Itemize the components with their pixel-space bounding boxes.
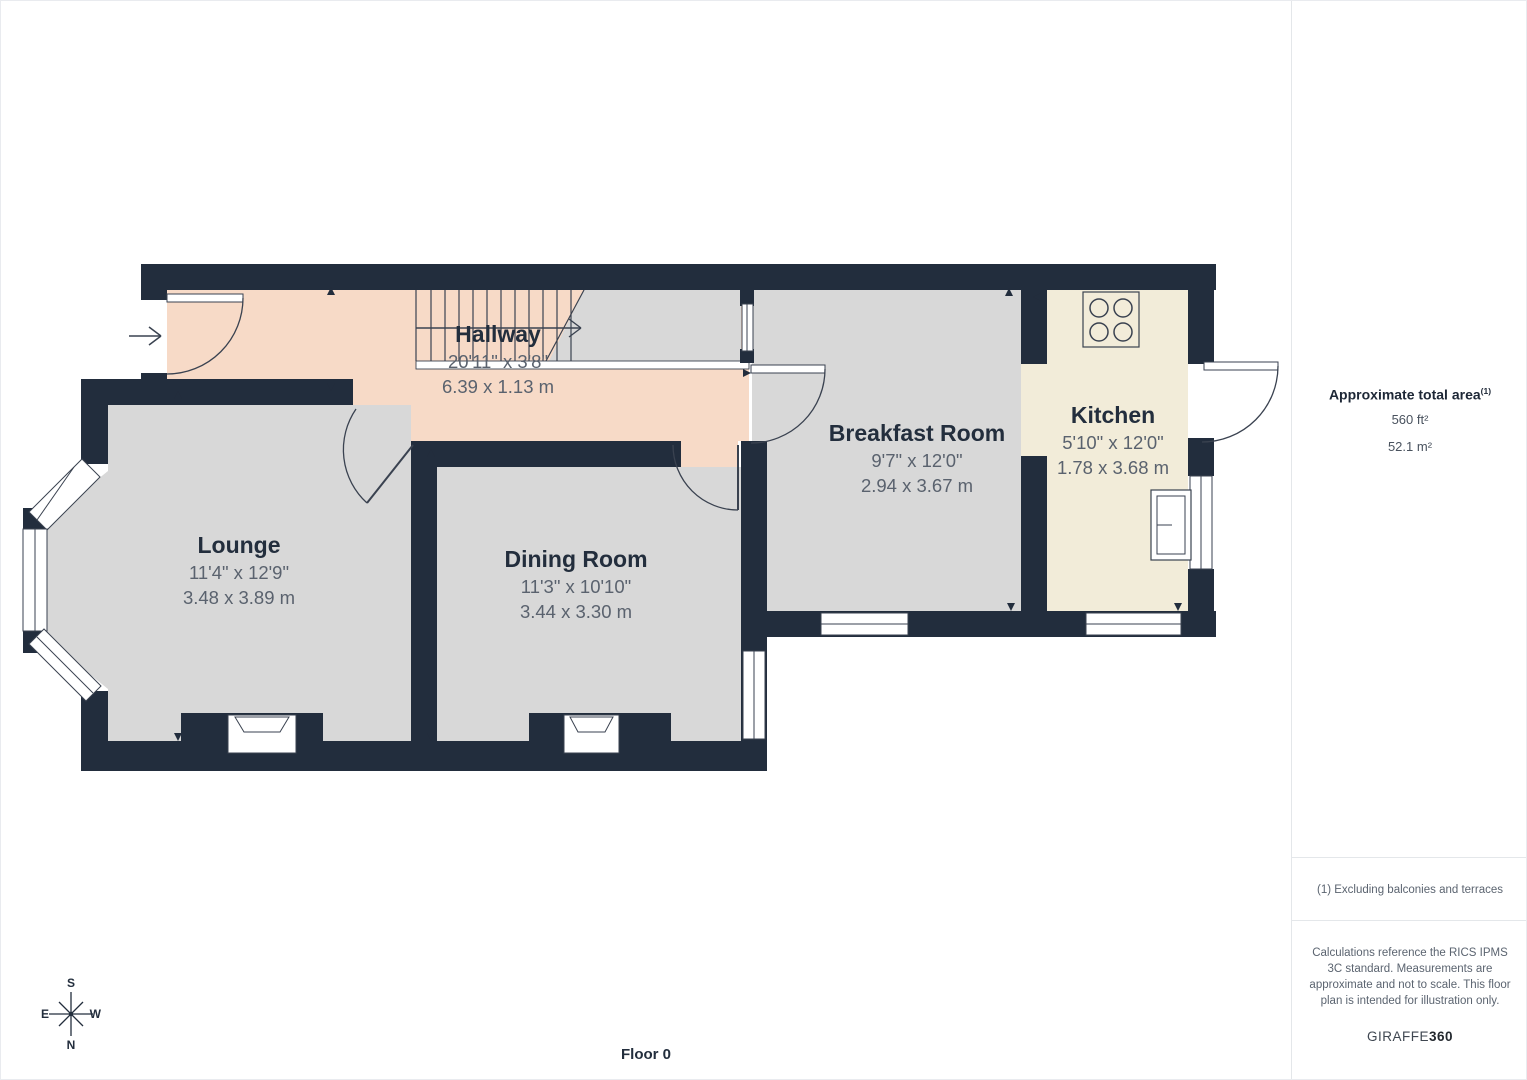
total-area-ft: 560 ft² bbox=[1292, 409, 1527, 430]
total-area-m: 52.1 m² bbox=[1292, 436, 1527, 457]
room-dim-m: 1.78 x 3.68 m bbox=[1057, 455, 1169, 480]
room-dim-ft: 5'10" x 12'0" bbox=[1057, 430, 1169, 455]
room-dim-ft: 20'11" x 3'8" bbox=[442, 349, 554, 374]
total-area-footnote-marker: (1) bbox=[1481, 386, 1491, 396]
room-label-dining-room: Dining Room 11'3" x 10'10" 3.44 x 3.30 m bbox=[504, 544, 647, 624]
brand-name: GIRAFFE bbox=[1367, 1029, 1429, 1044]
room-label-breakfast-room: Breakfast Room 9'7" x 12'0" 2.94 x 3.67 … bbox=[829, 418, 1005, 498]
room-dim-m: 6.39 x 1.13 m bbox=[442, 374, 554, 399]
disclaimer-text: Calculations reference the RICS IPMS 3C … bbox=[1306, 945, 1514, 1009]
sink-icon bbox=[1151, 490, 1191, 560]
room-name: Hallway bbox=[442, 319, 554, 349]
room-label-kitchen: Kitchen 5'10" x 12'0" 1.78 x 3.68 m bbox=[1057, 400, 1169, 480]
room-name: Breakfast Room bbox=[829, 418, 1005, 448]
fireplace-dining bbox=[564, 715, 619, 753]
total-area-title-text: Approximate total area bbox=[1329, 387, 1481, 403]
compass-s-label: S bbox=[67, 976, 75, 990]
room-label-hallway: Hallway 20'11" x 3'8" 6.39 x 1.13 m bbox=[442, 319, 554, 399]
brand-number: 360 bbox=[1429, 1029, 1453, 1044]
room-dim-ft: 9'7" x 12'0" bbox=[829, 448, 1005, 473]
room-name: Dining Room bbox=[504, 544, 647, 574]
total-area-block: Approximate total area(1) 560 ft² 52.1 m… bbox=[1292, 386, 1527, 457]
room-dim-ft: 11'3" x 10'10" bbox=[504, 574, 647, 599]
room-dim-m: 3.44 x 3.30 m bbox=[504, 599, 647, 624]
compass-icon: S E W N bbox=[41, 976, 101, 1052]
floor-label: Floor 0 bbox=[1, 1046, 1291, 1063]
room-dim-m: 3.48 x 3.89 m bbox=[183, 585, 295, 610]
total-area-title: Approximate total area(1) bbox=[1292, 386, 1527, 403]
footnote-text: (1) Excluding balconies and terraces bbox=[1303, 884, 1517, 896]
footnote-block: (1) Excluding balconies and terraces bbox=[1292, 857, 1527, 921]
room-label-lounge: Lounge 11'4" x 12'9" 3.48 x 3.89 m bbox=[183, 530, 295, 610]
fireplace-lounge bbox=[228, 715, 296, 753]
entrance-arrow-icon bbox=[129, 327, 161, 345]
room-dim-m: 2.94 x 3.67 m bbox=[829, 473, 1005, 498]
brand-logo: GIRAFFE360 bbox=[1292, 1029, 1527, 1044]
stove-icon bbox=[1083, 292, 1139, 347]
room-dim-ft: 11'4" x 12'9" bbox=[183, 560, 295, 585]
disclaimer-block: Calculations reference the RICS IPMS 3C … bbox=[1292, 920, 1527, 1080]
compass-star bbox=[47, 990, 95, 1038]
floorplan-page: Hallway 20'11" x 3'8" 6.39 x 1.13 m Loun… bbox=[0, 0, 1527, 1080]
room-name: Kitchen bbox=[1057, 400, 1169, 430]
sidebar: Approximate total area(1) 560 ft² 52.1 m… bbox=[1291, 1, 1527, 1080]
room-name: Lounge bbox=[183, 530, 295, 560]
